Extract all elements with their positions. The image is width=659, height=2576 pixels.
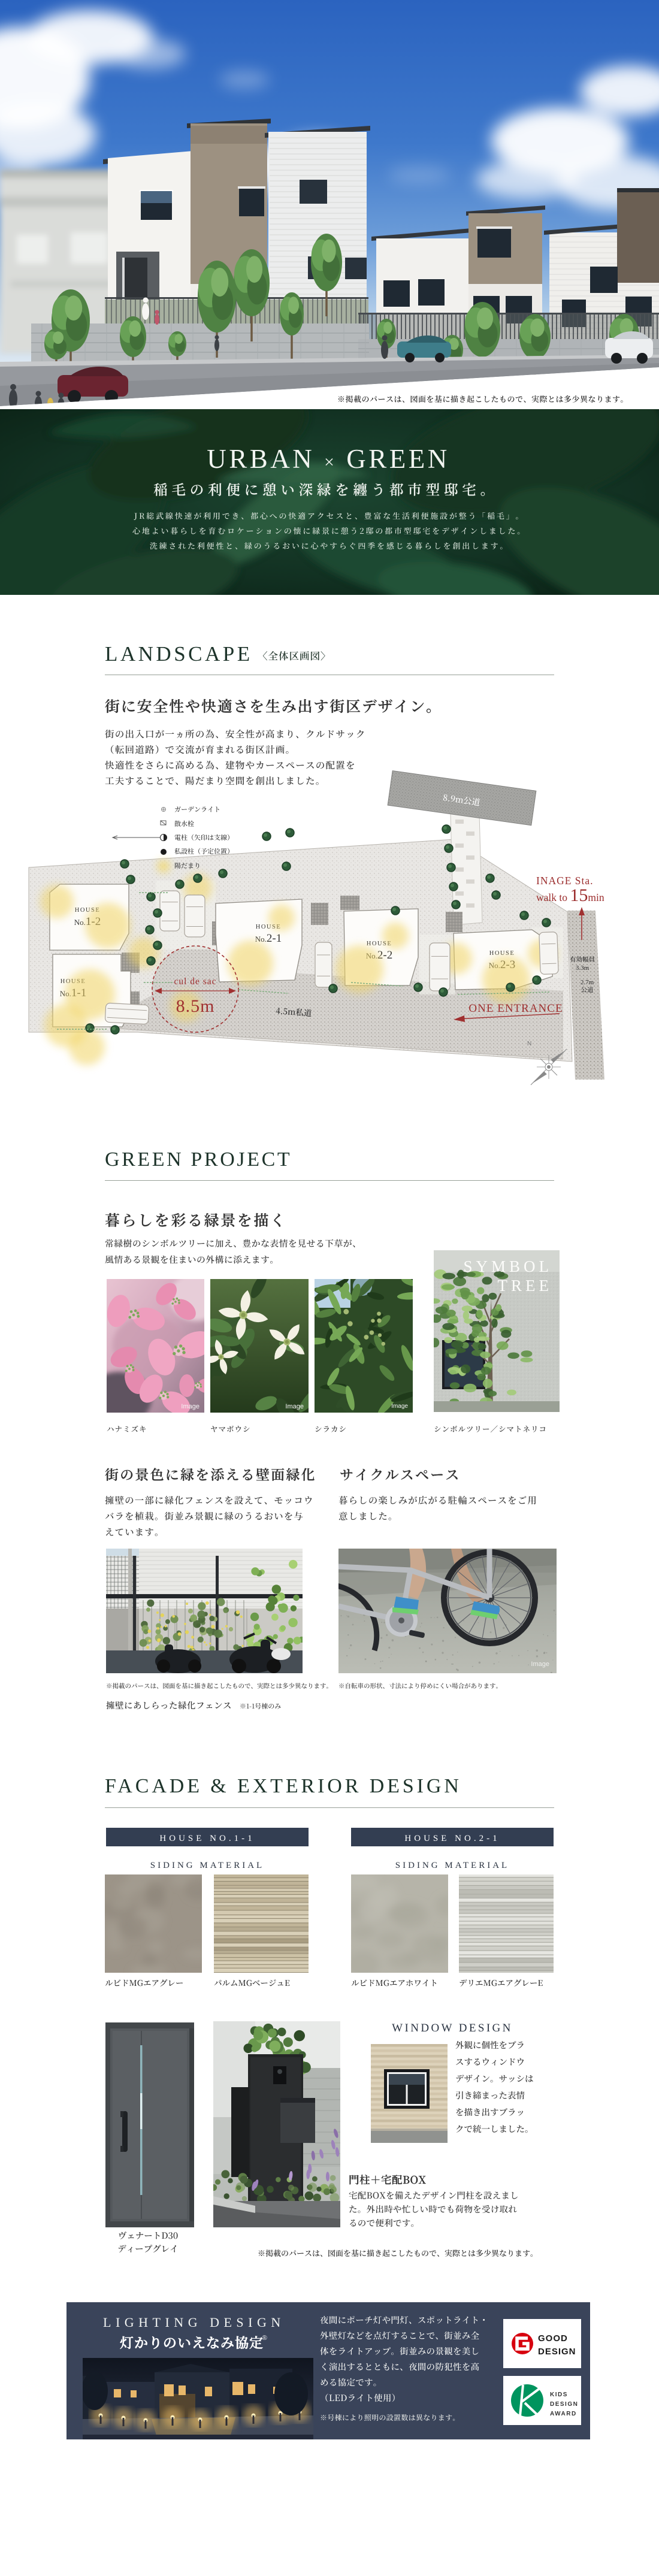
svg-text:SIDING MATERIAL: SIDING MATERIAL [395,1861,509,1870]
svg-text:DESIGN: DESIGN [550,2401,578,2408]
svg-text:Image: Image [285,1403,304,1410]
svg-text:DESIGN: DESIGN [538,2347,576,2357]
svg-text:GREEN PROJECT: GREEN PROJECT [105,1148,292,1171]
svg-text:HOUSE: HOUSE [489,950,515,957]
svg-text:SIDING MATERIAL: SIDING MATERIAL [150,1861,264,1870]
svg-text:TREE: TREE [498,1277,553,1295]
svg-text:N: N [527,1041,531,1047]
svg-text:FACADE & EXTERIOR DESIGN: FACADE & EXTERIOR DESIGN [105,1775,462,1797]
svg-text:SYMBOL: SYMBOL [463,1257,552,1275]
svg-text:AWARD: AWARD [550,2411,577,2417]
svg-text:Image: Image [391,1403,408,1410]
svg-text:LANDSCAPE: LANDSCAPE [105,642,253,666]
svg-text:GOOD: GOOD [538,2333,568,2344]
svg-text:WINDOW DESIGN: WINDOW DESIGN [392,2022,513,2034]
svg-text:Image: Image [531,1661,549,1668]
svg-text:Image: Image [181,1403,199,1410]
svg-text:KIDS: KIDS [550,2391,568,2398]
